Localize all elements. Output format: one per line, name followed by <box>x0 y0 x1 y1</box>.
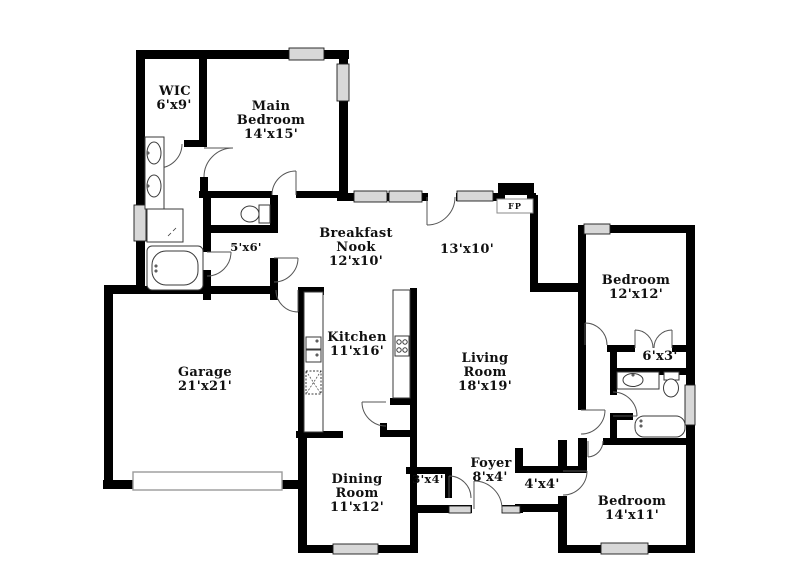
room-label-dining-1: Dining <box>332 472 383 487</box>
vanity-bath2 <box>617 372 659 389</box>
room-label-garage: Garage <box>178 365 232 380</box>
room-dims-flex: 13'x10' <box>440 242 494 257</box>
room-dims-foyer: 8'x4' <box>472 470 507 485</box>
toilet-bath2 <box>664 372 680 397</box>
room-dims-dining: 11'x12' <box>330 500 384 515</box>
room-label-breakfast-2: Nook <box>336 240 376 255</box>
floor-plan-canvas: WIC 6'x9' Main Bedroom 14'x15' Breakfast… <box>0 0 800 582</box>
fireplace-label: FP <box>508 201 522 211</box>
room-dims-wic: 6'x9' <box>156 98 191 113</box>
room-label-main-bedroom-1: Main <box>252 99 291 114</box>
room-label-breakfast-1: Breakfast <box>319 226 393 241</box>
double-vanity <box>145 137 164 209</box>
toilet-master <box>241 205 270 223</box>
bathtub-2 <box>635 416 685 437</box>
room-dims-breakfast: 12'x10' <box>329 254 383 269</box>
floor-plan: WIC 6'x9' Main Bedroom 14'x15' Breakfast… <box>0 0 800 582</box>
room-dims-closet-4x4: 4'x4' <box>524 477 559 492</box>
room-dims-living: 18'x19' <box>458 379 512 394</box>
room-dims-closet-3x4: 3'x4' <box>412 472 443 486</box>
room-label-living-2: Room <box>463 365 506 380</box>
room-label-main-bedroom-2: Bedroom <box>237 113 305 128</box>
kitchen-counter-left <box>304 292 323 432</box>
room-dims-main-bedroom: 14'x15' <box>244 127 298 142</box>
room-label-kitchen: Kitchen <box>327 330 387 345</box>
room-label-bedroom2: Bedroom <box>602 273 670 288</box>
room-label-foyer: Foyer <box>470 456 511 471</box>
room-label-bedroom3: Bedroom <box>598 494 666 509</box>
shower <box>147 209 183 242</box>
room-label-dining-2: Room <box>335 486 378 501</box>
room-dims-closet-6x3: 6'x3' <box>642 349 677 364</box>
room-label-living-1: Living <box>462 351 509 366</box>
garage-door <box>133 472 282 490</box>
room-dims-kitchen: 11'x16' <box>330 344 384 359</box>
bathtub <box>147 246 203 290</box>
room-dims-bedroom2: 12'x12' <box>609 287 663 302</box>
room-label-wic: WIC <box>158 84 191 99</box>
room-dims-garage: 21'x21' <box>178 379 232 394</box>
room-dims-bedroom3: 14'x11' <box>605 508 659 523</box>
kitchen-counter-island <box>393 290 410 398</box>
room-dims-closet-5x6: 5'x6' <box>230 240 261 254</box>
